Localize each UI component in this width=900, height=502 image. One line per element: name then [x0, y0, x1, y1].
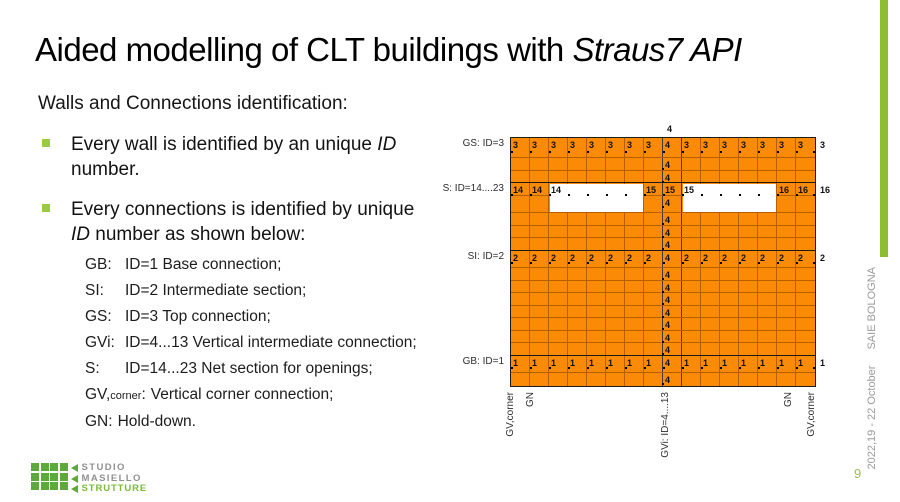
grid-node-label: 3	[646, 140, 651, 150]
grid-node-label: 2	[741, 253, 746, 263]
grid-node-dot	[758, 262, 760, 264]
grid-line-horizontal	[511, 170, 815, 171]
grid-node-dot	[549, 367, 551, 369]
logo-square	[41, 482, 49, 490]
grid-node-dot	[606, 262, 608, 264]
grid-node-dot	[530, 262, 532, 264]
grid-node-dot	[606, 151, 608, 153]
id-list-text: Hold-down.	[118, 413, 196, 430]
grid-node-dot	[662, 248, 664, 250]
grid-node-label: 3	[703, 140, 708, 150]
grid-node-dot	[644, 262, 646, 264]
grid-node-dot	[511, 194, 513, 196]
grid-node-label: 2	[570, 253, 575, 263]
grid-node-label: 14	[551, 185, 561, 195]
grid-node-label: 2	[589, 253, 594, 263]
grid-node-label: 2	[627, 253, 632, 263]
grid-node-dot	[606, 367, 608, 369]
grid-node-dot	[587, 262, 589, 264]
grid-node-label: 4	[665, 198, 670, 208]
grid-node-dot	[530, 151, 532, 153]
grid-right-label: 1	[820, 358, 825, 368]
grid-node-label: 2	[779, 253, 784, 263]
grid-node-label: 2	[722, 253, 727, 263]
grid-node-dot	[796, 262, 798, 264]
id-list-prefix: S:	[85, 356, 125, 382]
logo-square	[60, 482, 68, 490]
footer-date: 2022,19 - 22 October	[866, 366, 878, 470]
grid-node-dot	[777, 262, 779, 264]
id-list-prefix: GV,corner:	[85, 386, 146, 403]
id-list-item: GS:ID=3 Top connection;	[85, 304, 417, 330]
id-prefix-main: S:	[85, 360, 100, 377]
grid-node-label: 1	[741, 358, 746, 368]
grid-axis-label-bottom: GN	[783, 392, 795, 407]
grid-node-label: 4	[665, 228, 670, 238]
grid-node-label: 4	[665, 308, 670, 318]
grid-node-dot	[701, 151, 703, 153]
grid-node-dot	[625, 367, 627, 369]
bullet-square-icon	[42, 204, 50, 212]
grid-node-dot	[682, 367, 684, 369]
grid-node-dot	[606, 194, 608, 196]
grid-node-label: 16	[779, 185, 789, 195]
grid-node-dot	[662, 236, 664, 238]
grid-node-dot	[739, 367, 741, 369]
grid-node-label: 1	[703, 358, 708, 368]
grid-node-dot	[587, 194, 589, 196]
grid-node-dot	[739, 262, 741, 264]
id-list-text: ID=3 Top connection;	[125, 308, 271, 325]
wall-opening	[550, 184, 643, 212]
grid-node-label: 4	[665, 270, 670, 280]
logo-square	[31, 473, 39, 481]
bullet-text: Every wall is identified by an unique ID…	[71, 132, 433, 182]
grid-node-dot	[530, 367, 532, 369]
grid-node-dot	[701, 194, 703, 196]
grid-node-label: 3	[532, 140, 537, 150]
grid-node-dot	[625, 262, 627, 264]
grid-node-dot	[662, 353, 664, 355]
grid-node-label: 4	[665, 253, 670, 263]
id-list-prefix: SI:	[85, 278, 125, 304]
grid-node-label: 1	[779, 358, 784, 368]
id-prefix-suffix: :	[141, 386, 145, 403]
grid-node-dot	[720, 262, 722, 264]
grid-node-dot	[813, 194, 815, 196]
grid-node-label: 4	[665, 215, 670, 225]
grid-node-dot	[662, 303, 664, 305]
grid-node-label: 2	[798, 253, 803, 263]
slide-title-normal: Aided modelling of CLT buildings with	[35, 31, 572, 68]
wall-opening	[683, 184, 776, 212]
id-prefix-main: GN:	[85, 413, 113, 430]
id-list-text: ID=2 Intermediate section;	[125, 282, 306, 299]
bullet-text-post: number as shown below:	[90, 224, 305, 245]
id-list-prefix: GN:	[85, 413, 113, 430]
grid-axis-label-left: SI: ID=2	[432, 251, 504, 263]
bullet-list: Every wall is identified by an unique ID…	[42, 132, 442, 262]
grid-node-label: 3	[551, 140, 556, 150]
grid-node-dot	[662, 328, 664, 330]
grid-node-label: 4	[665, 345, 670, 355]
bullet-text: Every connections is identified by uniqu…	[71, 197, 433, 247]
id-list-text: ID=4...13 Vertical intermediate connecti…	[125, 334, 417, 351]
footer-event: SAIE BOLOGNA	[866, 267, 878, 350]
section-heading: Walls and Connections identification:	[38, 93, 348, 115]
grid-node-dot	[549, 262, 551, 264]
page-number: 9	[854, 466, 861, 481]
footer-logo: STUDIO MASIELLO STRUTTURE	[31, 463, 147, 495]
grid-line-horizontal	[511, 330, 815, 331]
grid-node-dot	[662, 223, 664, 225]
grid-node-dot	[625, 194, 627, 196]
id-prefix-main: SI:	[85, 282, 104, 299]
grid-node-label: 1	[684, 358, 689, 368]
grid-node-label: 1	[646, 358, 651, 368]
grid-node-dot	[813, 367, 815, 369]
bullet-item: Every connections is identified by uniqu…	[42, 197, 442, 247]
grid-node-dot	[813, 151, 815, 153]
grid-node-dot	[644, 367, 646, 369]
id-list-prefix: GS:	[85, 304, 125, 330]
id-list-item: S:ID=14...23 Net section for openings;	[85, 356, 417, 382]
grid-axis-label-bottom: GN	[525, 392, 537, 407]
id-list-prefix: GVi:	[85, 330, 125, 356]
grid-node-label: 1	[798, 358, 803, 368]
grid-node-dot	[662, 168, 664, 170]
grid-node-label: 16	[798, 185, 808, 195]
grid-node-dot	[663, 194, 665, 196]
bullet-item: Every wall is identified by an unique ID…	[42, 132, 442, 182]
accent-bar	[880, 0, 888, 257]
grid-node-dot	[720, 367, 722, 369]
grid-node-dot	[701, 367, 703, 369]
grid-node-dot	[663, 367, 665, 369]
grid-line-horizontal	[511, 225, 815, 226]
grid-node-label: 4	[665, 283, 670, 293]
id-prefix-subscript: corner	[110, 390, 141, 402]
grid-node-label: 1	[570, 358, 575, 368]
grid-line-horizontal	[511, 250, 815, 251]
grid-node-label: 2	[532, 253, 537, 263]
grid-line-horizontal	[511, 157, 815, 158]
grid-line-horizontal	[511, 212, 815, 213]
grid-node-dot	[777, 151, 779, 153]
grid-node-dot	[568, 262, 570, 264]
grid-node-dot	[796, 194, 798, 196]
grid-node-dot	[813, 262, 815, 264]
footer-vertical-text: 2022,19 - 22 OctoberSAIE BOLOGNA	[866, 267, 878, 470]
grid-node-label: 3	[684, 140, 689, 150]
grid-node-label: 15	[646, 185, 656, 195]
logo-square	[31, 482, 39, 490]
grid-right-label: 16	[820, 185, 830, 195]
grid-node-label: 1	[551, 358, 556, 368]
id-list-text: ID=1 Base connection;	[125, 256, 281, 273]
id-list-item: GN:Hold-down.	[85, 409, 417, 435]
grid-right-label: 3	[820, 140, 825, 150]
grid-node-dot	[662, 316, 664, 318]
grid-node-dot	[644, 194, 646, 196]
grid-axis-label-bottom: GV,corner	[505, 392, 517, 437]
grid-node-label: 1	[760, 358, 765, 368]
slide: { "title": {"normal": "Aided modelling o…	[0, 0, 900, 502]
grid-node-dot	[587, 367, 589, 369]
grid-node-dot	[644, 151, 646, 153]
logo-grid-icon	[31, 463, 68, 490]
grid-node-dot	[662, 383, 664, 385]
grid-node-dot	[739, 151, 741, 153]
id-list-item: SI:ID=2 Intermediate section;	[85, 278, 417, 304]
grid-line-horizontal	[511, 280, 815, 281]
grid-node-dot	[777, 194, 779, 196]
grid-node-label: 2	[513, 253, 518, 263]
grid-node-dot	[701, 262, 703, 264]
grid-node-label: 2	[608, 253, 613, 263]
grid-axis-label-left: GS: ID=3	[432, 138, 504, 150]
id-prefix-main: GV,	[85, 386, 110, 403]
logo-square	[50, 473, 58, 481]
grid-node-label: 4	[665, 375, 670, 385]
id-list-item: GV,corner:Vertical corner connection;	[85, 382, 417, 409]
grid-node-dot	[663, 151, 665, 153]
logo-text: STUDIO MASIELLO STRUTTURE	[82, 463, 148, 495]
grid-node-label: 3	[798, 140, 803, 150]
grid-node-dot	[682, 194, 684, 196]
bullet-text-pre: Every wall is identified by an unique	[71, 134, 377, 155]
grid-node-dot	[758, 151, 760, 153]
grid-node-dot	[796, 151, 798, 153]
grid-node-label: 4	[665, 240, 670, 250]
grid-node-dot	[530, 194, 532, 196]
grid-node-dot	[682, 151, 684, 153]
logo-square	[50, 463, 58, 471]
grid-node-label: 3	[779, 140, 784, 150]
bullet-text-post: number.	[71, 159, 140, 180]
grid-node-label: 4	[665, 140, 670, 150]
grid-node-dot	[796, 367, 798, 369]
grid-node-label: 1	[513, 358, 518, 368]
id-prefix-main: GS:	[85, 308, 112, 325]
id-list-item: GVi:ID=4...13 Vertical intermediate conn…	[85, 330, 417, 356]
grid-node-label: 1	[627, 358, 632, 368]
grid-node-dot	[568, 151, 570, 153]
grid-node-label: 4	[665, 160, 670, 170]
grid-node-dot	[720, 194, 722, 196]
logo-line-1: STUDIO	[82, 463, 148, 474]
grid-node-label: 2	[760, 253, 765, 263]
grid-node-label: 3	[760, 140, 765, 150]
grid-node-dot	[511, 151, 513, 153]
grid-node-dot	[758, 194, 760, 196]
id-prefix-main: GB:	[85, 256, 112, 273]
id-list-prefix: GB:	[85, 252, 125, 278]
grid-node-label: 1	[608, 358, 613, 368]
grid-node-label: 3	[589, 140, 594, 150]
id-list-text: Vertical corner connection;	[151, 386, 334, 403]
logo-chevrons-icon	[71, 463, 78, 493]
grid-line-horizontal	[511, 267, 815, 268]
connection-id-list: GB:ID=1 Base connection;SI:ID=2 Intermed…	[85, 252, 417, 435]
grid-node-dot	[663, 262, 665, 264]
grid-node-label: 3	[722, 140, 727, 150]
grid-axis-label-bottom: GV,corner	[806, 392, 818, 437]
grid-node-dot	[720, 151, 722, 153]
grid-node-label: 4	[665, 358, 670, 368]
grid-node-dot	[739, 194, 741, 196]
grid-node-dot	[511, 367, 513, 369]
logo-square	[31, 463, 39, 471]
slide-title-italic: Straus7 API	[572, 31, 741, 68]
grid-node-label: 14	[532, 185, 542, 195]
grid-axis-label-bottom: GVi: ID=4....13	[660, 392, 672, 458]
grid-node-label: 15	[665, 185, 675, 195]
grid-node-label: 2	[684, 253, 689, 263]
grid-line-horizontal	[511, 355, 815, 356]
logo-line-3: STRUTTURE	[82, 484, 148, 495]
grid-node-dot	[777, 367, 779, 369]
id-list-item: GB:ID=1 Base connection;	[85, 252, 417, 278]
grid-node-dot	[511, 262, 513, 264]
logo-square	[41, 473, 49, 481]
grid-node-dot	[662, 341, 664, 343]
grid-node-dot	[625, 151, 627, 153]
grid-node-label: 4	[665, 333, 670, 343]
logo-square	[50, 482, 58, 490]
logo-square	[60, 463, 68, 471]
grid-node-dot	[662, 206, 664, 208]
grid-node-label: 3	[570, 140, 575, 150]
grid-node-label: 4	[665, 173, 670, 183]
grid-node-label: 1	[722, 358, 727, 368]
grid-node-dot	[568, 194, 570, 196]
id-prefix-main: GVi:	[85, 334, 115, 351]
grid-node-label: 4	[665, 320, 670, 330]
grid-node-label: 3	[627, 140, 632, 150]
grid-node-label: 2	[551, 253, 556, 263]
bullet-text-pre: Every connections is identified by uniqu…	[71, 199, 414, 220]
bullet-text-em: ID	[377, 134, 396, 155]
grid-node-label: 2	[646, 253, 651, 263]
id-list-text: ID=14...23 Net section for openings;	[125, 360, 373, 377]
grid-right-label: 2	[820, 253, 825, 263]
grid-line-horizontal	[511, 372, 815, 373]
grid-node-label: 1	[589, 358, 594, 368]
grid-node-label: 1	[532, 358, 537, 368]
grid-node-dot	[662, 181, 664, 183]
grid-node-label: 3	[608, 140, 613, 150]
grid-line-horizontal	[511, 305, 815, 306]
grid-node-dot	[662, 291, 664, 293]
logo-square	[41, 463, 49, 471]
grid-node-dot	[587, 151, 589, 153]
slide-title: Aided modelling of CLT buildings with St…	[35, 31, 875, 69]
grid-node-dot	[549, 151, 551, 153]
grid-node-dot	[568, 367, 570, 369]
grid-node-label: 14	[513, 185, 523, 195]
wall-grid: 3333333343333333441414141515151616444422…	[510, 137, 816, 387]
logo-square	[60, 473, 68, 481]
grid-node-dot	[549, 194, 551, 196]
grid-node-label: 3	[513, 140, 518, 150]
bullet-square-icon	[42, 139, 50, 147]
grid-axis-label-left: S: ID=14....23	[432, 183, 504, 195]
grid-node-label: 2	[703, 253, 708, 263]
grid-node-dot	[758, 367, 760, 369]
grid-top-label: 4	[667, 124, 672, 134]
grid-node-label: 15	[684, 185, 694, 195]
grid-node-dot	[682, 262, 684, 264]
grid-node-label: 4	[665, 295, 670, 305]
bullet-text-em: ID	[71, 224, 90, 245]
grid-node-label: 3	[741, 140, 746, 150]
grid-node-dot	[662, 278, 664, 280]
grid-axis-label-left: GB: ID=1	[432, 356, 504, 368]
